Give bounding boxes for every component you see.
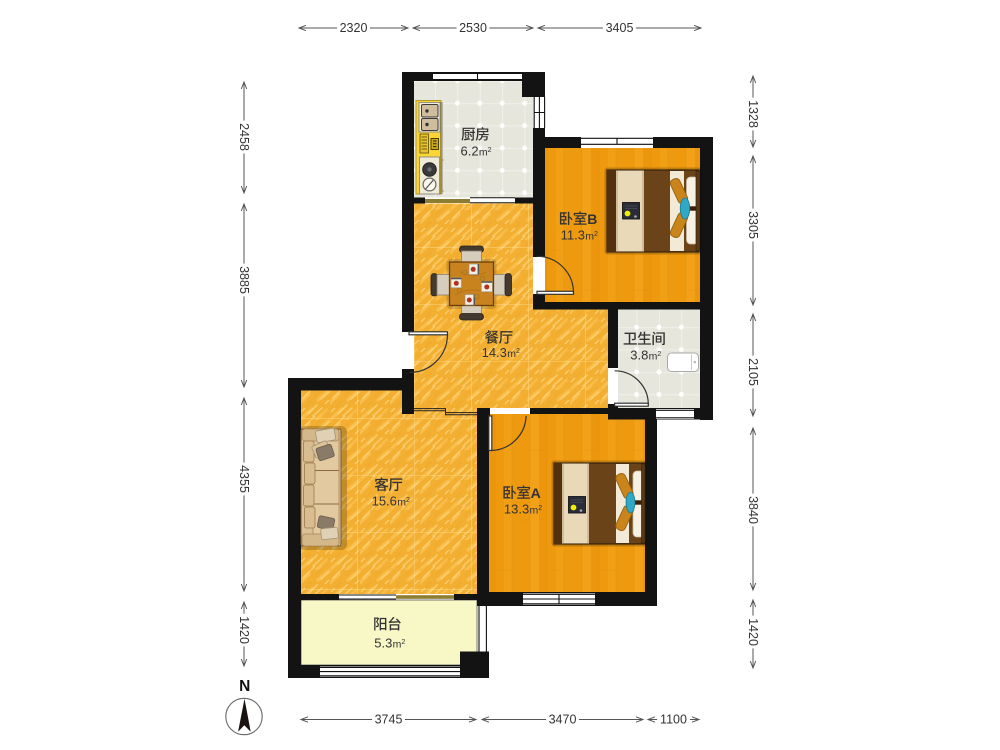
svg-text:3840: 3840 [746,496,760,524]
svg-text:5.3m2: 5.3m2 [374,636,405,651]
svg-text:1420: 1420 [237,616,251,644]
svg-text:3885: 3885 [237,266,251,294]
svg-text:3.8m2: 3.8m2 [630,348,661,363]
svg-text:N: N [239,678,250,695]
svg-text:15.6m2: 15.6m2 [372,494,410,509]
svg-text:2105: 2105 [746,358,760,386]
svg-text:14.3m2: 14.3m2 [482,345,520,360]
svg-text:6.2m2: 6.2m2 [461,144,492,159]
svg-text:3305: 3305 [746,211,760,239]
svg-text:11.3m2: 11.3m2 [561,228,598,243]
svg-text:B: B [587,211,597,227]
svg-text:2320: 2320 [340,21,368,35]
svg-text:1100: 1100 [660,713,687,727]
svg-text:1328: 1328 [746,100,760,128]
svg-text:2458: 2458 [237,123,251,151]
svg-text:A: A [531,485,541,501]
svg-text:2530: 2530 [459,21,487,35]
svg-text:13.3m2: 13.3m2 [504,502,542,517]
svg-text:3745: 3745 [375,713,403,727]
svg-text:3405: 3405 [606,21,634,35]
svg-text:3470: 3470 [549,713,577,727]
svg-text:4355: 4355 [237,465,251,493]
svg-text:1420: 1420 [746,618,760,646]
